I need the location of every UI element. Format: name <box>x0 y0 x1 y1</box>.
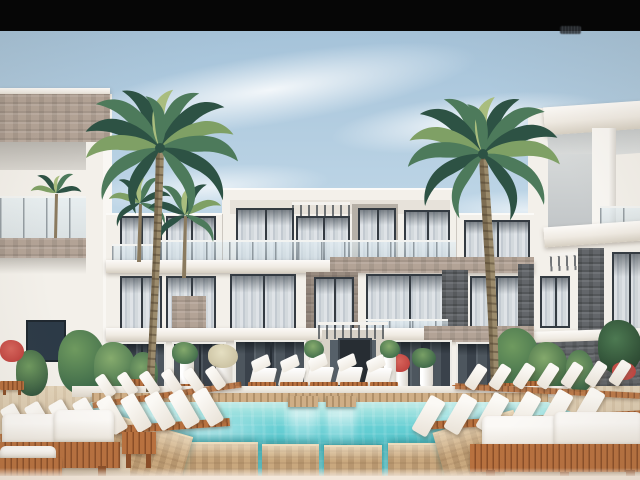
lounger-backrest <box>411 394 446 437</box>
sun-lounger-row-right <box>0 0 640 480</box>
lounger-backrest <box>443 392 478 435</box>
lounger-backrest <box>512 362 536 390</box>
lounger-backrest <box>536 362 560 390</box>
corner-smudge <box>560 26 581 34</box>
lounger-backrest <box>584 360 608 388</box>
double-lounger-cushion <box>554 412 640 448</box>
lounger-backrest <box>560 361 584 389</box>
bottom-deck-strip <box>0 476 640 480</box>
resort-rendering-scene <box>0 0 640 480</box>
letterbox-bar <box>0 0 640 31</box>
lounger-backrest <box>608 359 632 387</box>
